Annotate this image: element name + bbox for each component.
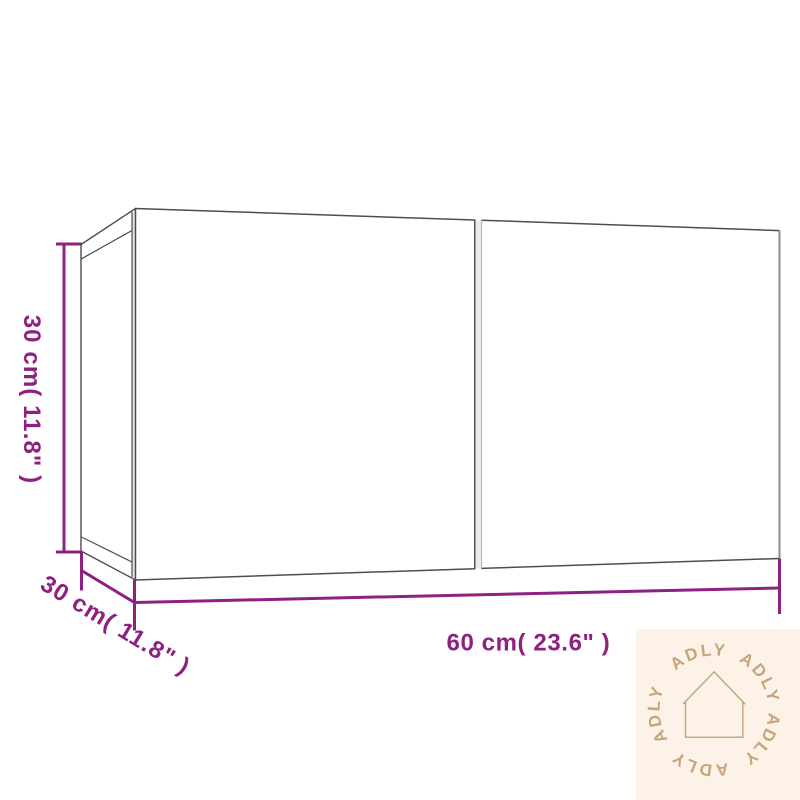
svg-text:60 cm( 23.6" ): 60 cm( 23.6" ) xyxy=(447,630,611,657)
svg-text:30 cm( 11.8" ): 30 cm( 11.8" ) xyxy=(18,315,45,485)
